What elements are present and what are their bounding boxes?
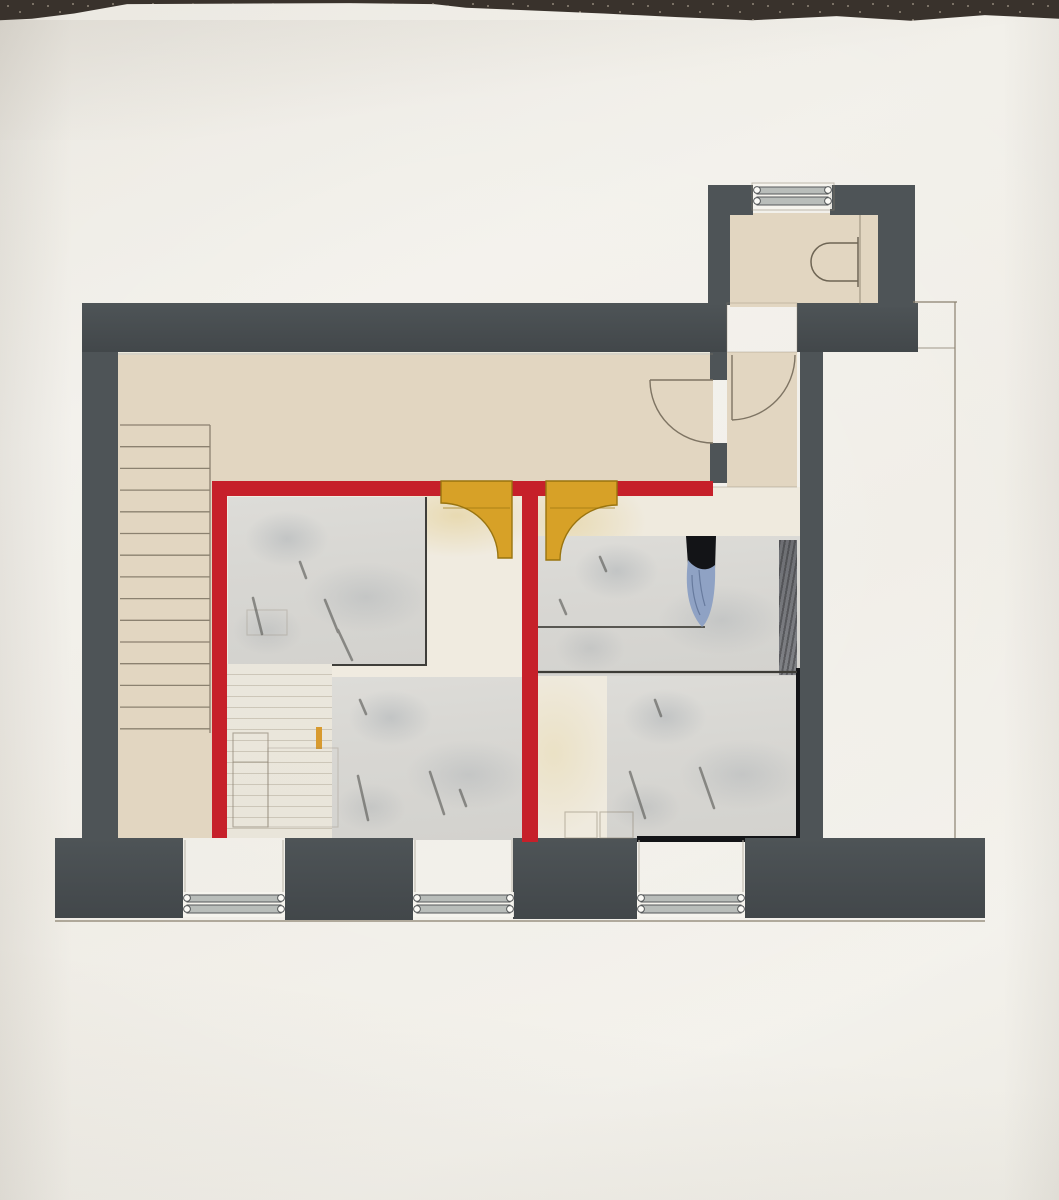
yellow-door-swings xyxy=(441,481,617,560)
desk-lines xyxy=(538,627,797,672)
window-bar xyxy=(417,895,510,902)
charcoal-dash xyxy=(630,772,645,818)
staircase-treads xyxy=(120,425,210,729)
window-cap xyxy=(507,906,514,913)
window-cap xyxy=(638,906,645,913)
charcoal-dash xyxy=(560,600,566,614)
bottom-windows xyxy=(183,840,745,917)
charcoal-dash xyxy=(358,776,368,820)
window-cap xyxy=(184,906,191,913)
charcoal-dash xyxy=(430,772,444,814)
bathroom-door-arc xyxy=(732,355,795,420)
window-cap xyxy=(738,906,745,913)
pencil-linework-layer xyxy=(0,0,1059,1200)
window-cap xyxy=(414,895,421,902)
charcoal-dash xyxy=(253,598,262,634)
window-bar xyxy=(641,895,741,902)
window-bar xyxy=(757,197,828,205)
door-swing-right-icon xyxy=(546,481,617,560)
photo-cutout-chair xyxy=(686,536,716,627)
floor-plan-photo xyxy=(0,0,1059,1200)
window-bar xyxy=(187,895,281,902)
furniture-sketch xyxy=(600,812,633,838)
window-cap xyxy=(738,895,745,902)
bathroom-opening-outline xyxy=(727,303,797,352)
window-cap xyxy=(825,198,832,205)
charcoal-dash xyxy=(338,630,352,660)
bathroom-window-icon xyxy=(753,184,832,209)
window-cap xyxy=(754,198,761,205)
window-cap xyxy=(184,895,191,902)
window-bar xyxy=(417,905,510,913)
furniture-sketch xyxy=(247,610,287,635)
window-bar xyxy=(757,187,828,194)
pencil-door-swings xyxy=(650,355,795,443)
window-cap xyxy=(414,906,421,913)
window-cap xyxy=(278,906,285,913)
charcoal-dashes xyxy=(253,557,714,820)
charcoal-dash xyxy=(325,600,338,632)
charcoal-dash xyxy=(600,557,606,571)
wardrobe-sketch xyxy=(233,733,268,827)
toilet-bowl-outline xyxy=(811,243,858,281)
door-swing-left-icon xyxy=(441,481,512,558)
construction-lines xyxy=(55,302,985,921)
window-bar xyxy=(187,905,281,913)
window-cap xyxy=(507,895,514,902)
hall-door-arc xyxy=(650,380,713,443)
window-cap xyxy=(638,895,645,902)
charcoal-dash xyxy=(460,790,466,806)
furniture-sketch xyxy=(268,748,338,827)
furniture-sketch xyxy=(565,812,597,838)
charcoal-dash xyxy=(360,700,366,714)
window-cap xyxy=(825,187,832,194)
cutout-blue-part xyxy=(687,560,715,627)
window-bar xyxy=(641,905,741,913)
toilet-icon xyxy=(811,215,860,305)
furniture-sketches xyxy=(233,610,633,838)
charcoal-dash xyxy=(300,562,306,578)
window-cap xyxy=(278,895,285,902)
window-cap xyxy=(754,187,761,194)
charcoal-dash xyxy=(655,700,661,716)
charcoal-dash xyxy=(700,768,714,808)
